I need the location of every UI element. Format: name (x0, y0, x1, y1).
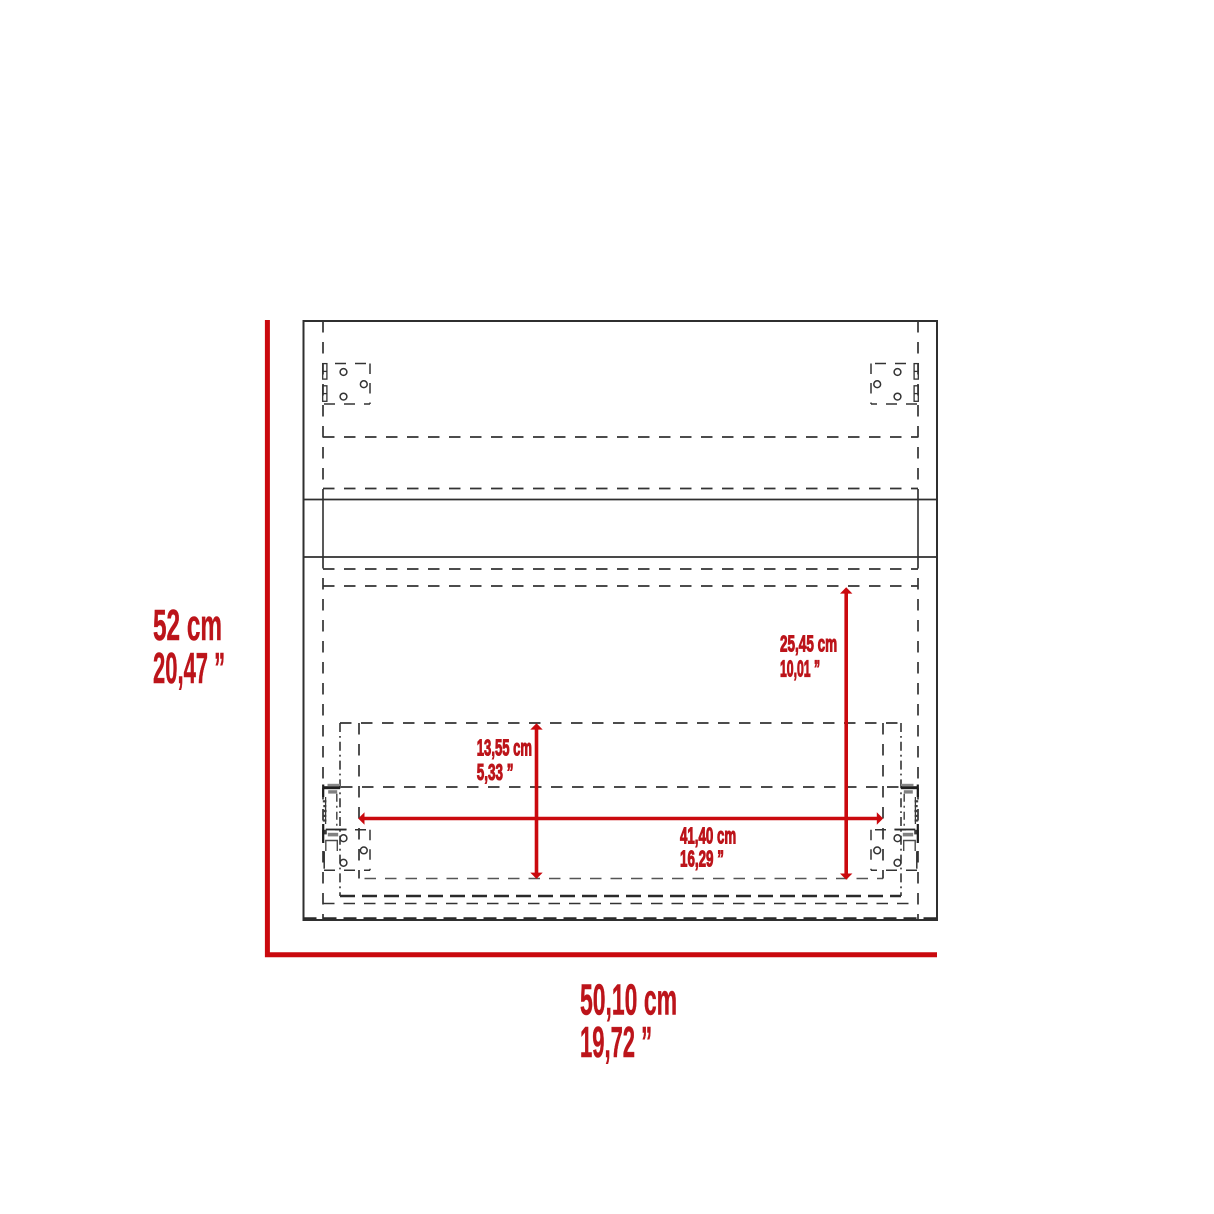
svg-text:50,10 cm: 50,10 cm (580, 976, 677, 1025)
svg-text:10,01 ”: 10,01 ” (780, 655, 820, 681)
svg-text:41,40 cm: 41,40 cm (680, 824, 736, 850)
svg-text:52 cm: 52 cm (153, 600, 222, 650)
svg-text:20,47 ”: 20,47 ” (153, 645, 225, 693)
svg-text:13,55 cm: 13,55 cm (477, 736, 532, 762)
svg-text:16,29 ”: 16,29 ” (680, 847, 724, 873)
svg-text:5,33 ”: 5,33 ” (477, 760, 514, 786)
svg-text:25,45 cm: 25,45 cm (780, 632, 837, 658)
svg-text:19,72 ”: 19,72 ” (580, 1019, 652, 1067)
